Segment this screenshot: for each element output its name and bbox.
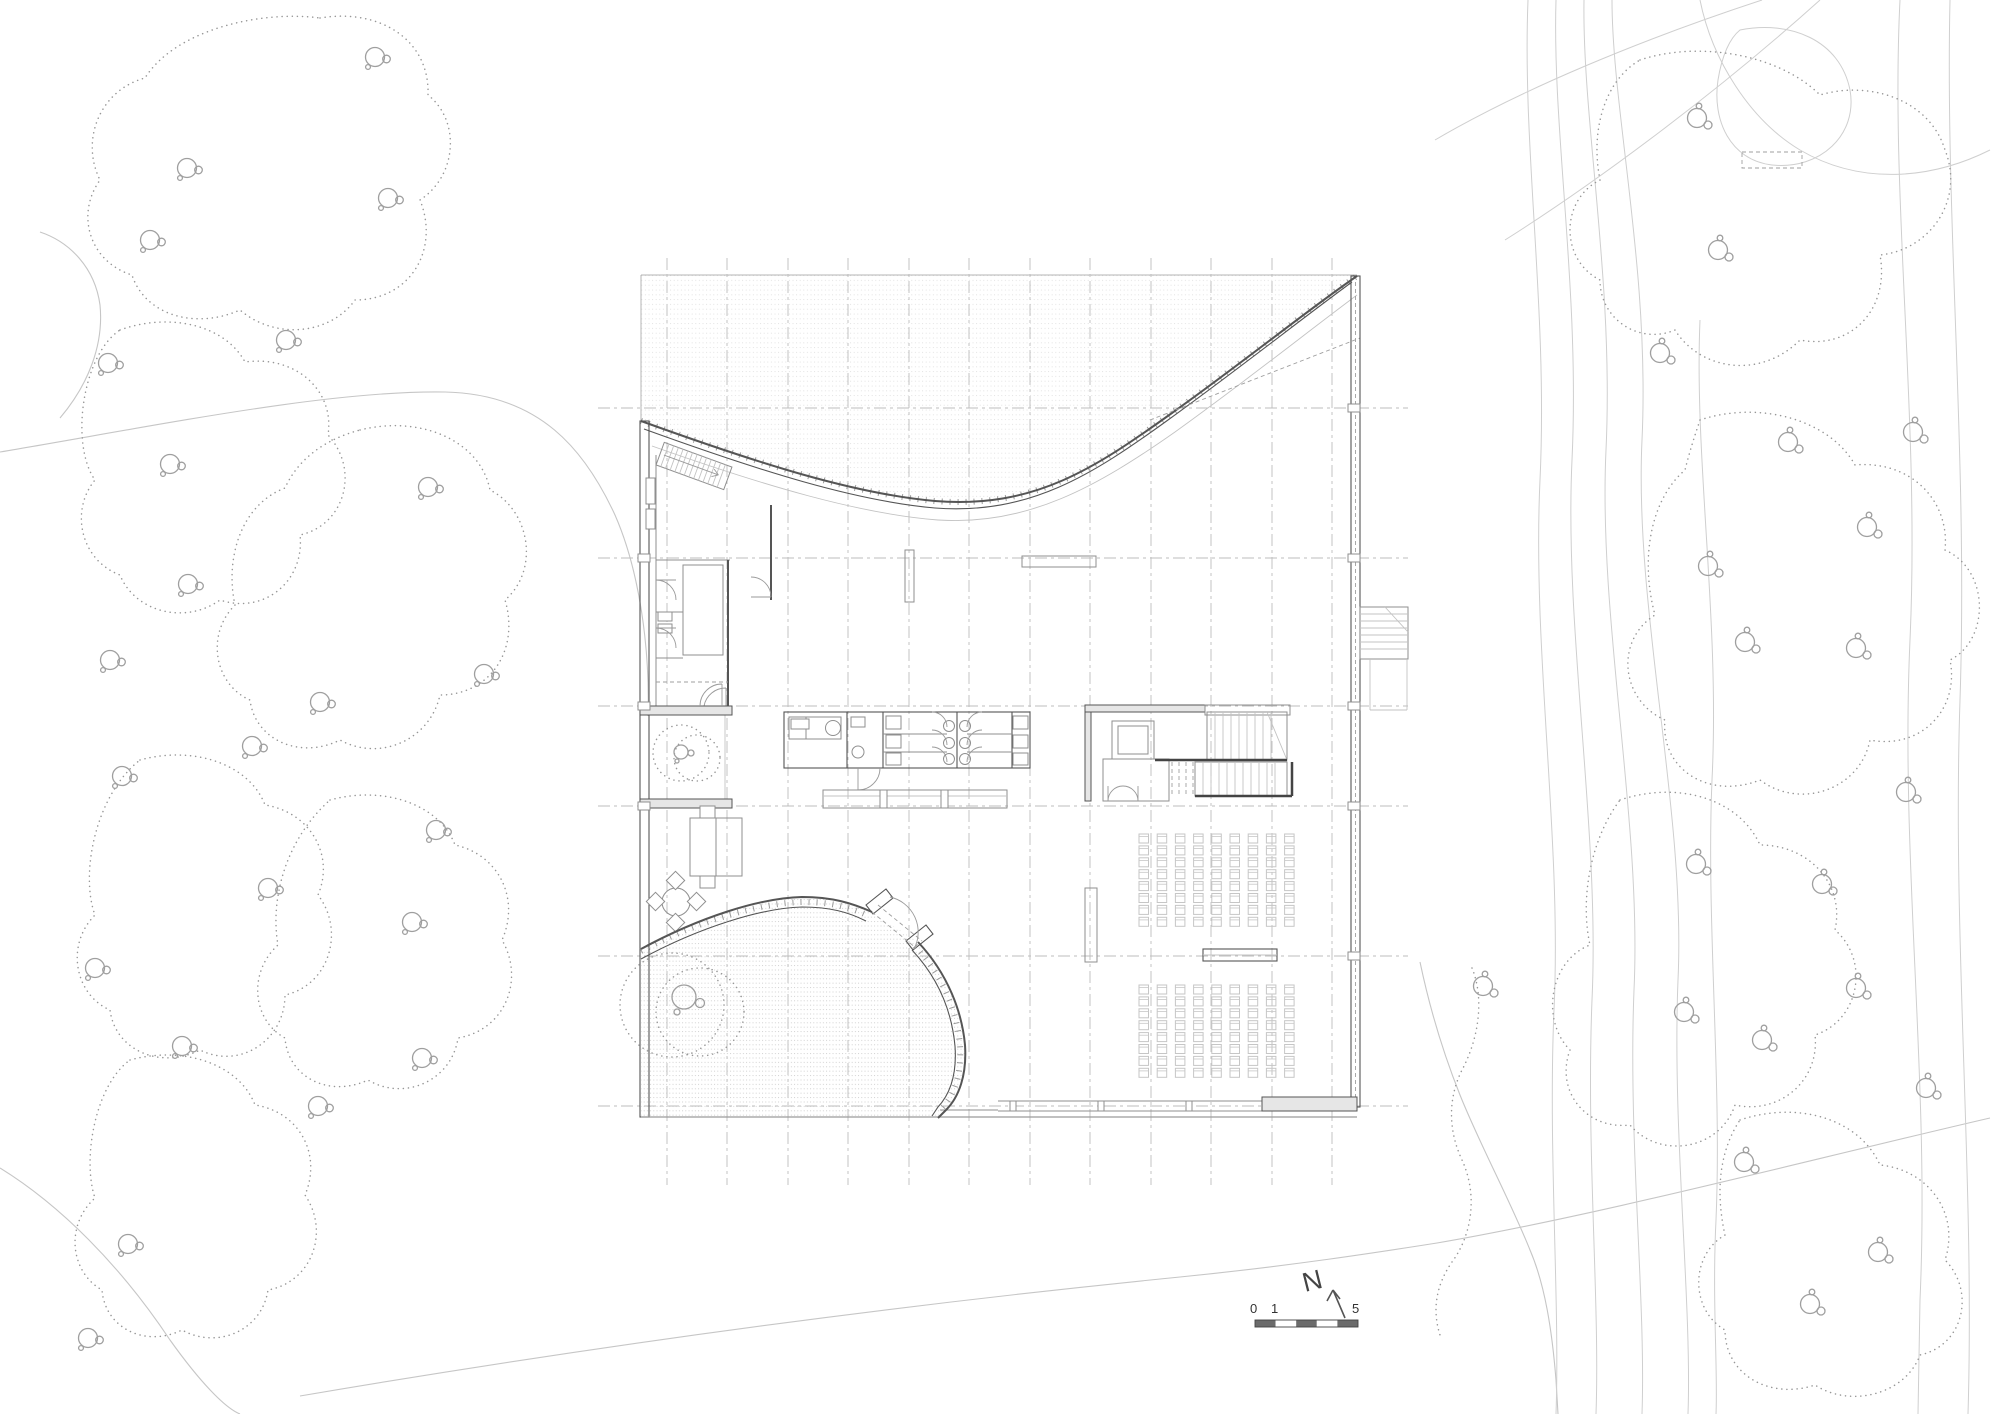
southeast-wall-band	[1262, 1097, 1357, 1111]
tree-trunk-tiny	[79, 1346, 84, 1351]
tree-trunk	[419, 478, 438, 497]
tree-icon	[86, 959, 111, 981]
chair-icon	[1194, 1056, 1204, 1065]
chair-icon	[1248, 905, 1258, 914]
tree-trunk-tiny	[277, 348, 282, 353]
tree-trunk-tiny	[1821, 869, 1827, 875]
tree-trunk-tiny	[243, 754, 248, 759]
chair-icon	[1157, 894, 1167, 903]
chair-icon	[1194, 834, 1204, 843]
chair-icon	[1230, 858, 1240, 867]
scale-bar-segment	[1337, 1320, 1358, 1327]
chair-icon	[1194, 882, 1204, 891]
chair-icon	[1139, 894, 1149, 903]
tree-icon	[475, 665, 500, 687]
tree-icon	[99, 354, 124, 376]
sink	[944, 721, 955, 732]
chair-icon	[1194, 1009, 1204, 1018]
tree-trunk	[427, 821, 446, 840]
chair-icon	[1248, 1045, 1258, 1054]
chair-icon	[1194, 1021, 1204, 1030]
tree-trunk-tiny	[1787, 427, 1793, 433]
tree-icon	[427, 821, 452, 843]
tree-trunk-small	[1863, 651, 1871, 659]
chair-icon	[1157, 1045, 1167, 1054]
chair-icon	[1139, 1009, 1149, 1018]
tree-trunk-tiny	[1482, 971, 1488, 977]
chair-icon	[1194, 997, 1204, 1006]
tree-icon	[419, 478, 444, 500]
chair-icon	[1139, 985, 1149, 994]
tree-trunk-tiny	[419, 495, 424, 500]
chair-icon	[1194, 1068, 1204, 1077]
tree-trunk-tiny	[141, 248, 146, 253]
chair-icon	[1139, 882, 1149, 891]
chair-icon	[1230, 997, 1240, 1006]
chair-icon	[1212, 917, 1222, 926]
chair-icon	[1212, 1033, 1222, 1042]
chair-icon	[1285, 985, 1295, 994]
sink	[944, 738, 955, 749]
wall-slat	[1085, 888, 1097, 962]
tree-trunk	[243, 737, 262, 756]
east-core	[1085, 705, 1292, 801]
tree-icon	[1688, 103, 1713, 129]
chair-icon	[1266, 894, 1276, 903]
tree-trunk-small	[1874, 530, 1882, 538]
chair-icon	[1175, 894, 1185, 903]
tree-trunk-small	[1885, 1255, 1893, 1263]
chair-icon	[1266, 1045, 1276, 1054]
tree-trunk-tiny	[178, 176, 183, 181]
chair-icon	[1285, 1021, 1295, 1030]
tree-icon	[178, 159, 203, 181]
chair-icon	[1157, 985, 1167, 994]
chair-icon	[1230, 905, 1240, 914]
chair-icon	[1212, 882, 1222, 891]
chair-icon	[1266, 1009, 1276, 1018]
chair-icon	[1285, 894, 1295, 903]
chair-icon	[1285, 997, 1295, 1006]
chair-icon	[1230, 985, 1240, 994]
tree-trunk-tiny	[179, 592, 184, 597]
chair-icon	[1248, 917, 1258, 926]
chair-icon	[1285, 1068, 1295, 1077]
tree-icon	[113, 767, 138, 789]
shower	[886, 716, 901, 729]
chair-icon	[1157, 905, 1167, 914]
chair-icon	[1230, 1068, 1240, 1077]
chair-icon	[1248, 997, 1258, 1006]
chair-icon	[1157, 1033, 1167, 1042]
tree-trunk	[277, 331, 296, 350]
chair-icon	[1230, 1021, 1240, 1030]
tree-icon	[1687, 849, 1712, 875]
door-swing	[751, 577, 771, 597]
chair-icon	[1285, 858, 1295, 867]
tree-trunk	[79, 1329, 98, 1348]
chair-icon	[1230, 846, 1240, 855]
tree-trunk-small	[1933, 1091, 1941, 1099]
tree-trunk-tiny	[1696, 103, 1702, 109]
chair-icon	[1248, 1009, 1258, 1018]
roof-surface	[641, 275, 1357, 502]
tree-trunk	[113, 767, 132, 786]
chair-icon	[1139, 917, 1149, 926]
window	[646, 509, 655, 529]
tree-trunk-tiny	[1695, 849, 1701, 855]
chair-icon	[1266, 846, 1276, 855]
chair-icon	[1139, 1021, 1149, 1030]
round-table	[662, 888, 690, 916]
chair-icon	[1212, 1068, 1222, 1077]
tree-trunk-small	[1703, 867, 1711, 875]
chair-icon	[1212, 846, 1222, 855]
tree-trunk-tiny	[101, 668, 106, 673]
chair-icon	[1266, 834, 1276, 843]
site-plan-page: N 0 1 5	[0, 0, 2000, 1414]
chair-icon	[1194, 1033, 1204, 1042]
chair-icon	[1248, 846, 1258, 855]
chair-icon	[1175, 997, 1185, 1006]
chair-icon	[1157, 834, 1167, 843]
chair-icon	[1175, 870, 1185, 879]
serving-counter	[823, 790, 1007, 808]
chair-icon	[1139, 846, 1149, 855]
chair-icon	[1212, 1009, 1222, 1018]
tree-trunk-small	[1490, 989, 1498, 997]
patio-tree	[653, 725, 720, 781]
patio-decking	[649, 715, 725, 799]
chair-icon	[1230, 834, 1240, 843]
chair-icon	[1266, 905, 1276, 914]
chair-icon	[1230, 1056, 1240, 1065]
chair	[700, 876, 715, 888]
trees-east	[1474, 103, 1942, 1315]
contour-fragment	[1742, 152, 1802, 168]
tree-trunk-tiny	[475, 682, 480, 687]
tree-icon	[79, 1329, 104, 1351]
shower	[886, 735, 901, 748]
tree-trunk-small	[1920, 435, 1928, 443]
tree-trunk-small	[1817, 1307, 1825, 1315]
storage-room	[683, 565, 723, 655]
chair-icon	[1175, 985, 1185, 994]
tree-icon	[1651, 338, 1676, 364]
tree-icon	[1869, 1237, 1894, 1263]
chair-icon	[1175, 1056, 1185, 1065]
chair-icon	[1230, 1009, 1240, 1018]
shower	[1013, 753, 1028, 765]
chair-icon	[1175, 1068, 1185, 1077]
tree-icon	[277, 331, 302, 353]
tree-trunk-tiny	[1809, 1289, 1815, 1295]
tree-trunk	[309, 1097, 328, 1116]
tree-trunk-tiny	[1744, 627, 1750, 633]
tree-trunk-small	[1863, 991, 1871, 999]
tree-icon	[1699, 551, 1724, 577]
chair-icon	[1194, 846, 1204, 855]
chair-icon	[1230, 894, 1240, 903]
tree-icon	[1904, 417, 1929, 443]
chair-icon	[1157, 1021, 1167, 1030]
chair-icon	[1266, 858, 1276, 867]
terrace-decking	[641, 715, 965, 1118]
tree-icon	[309, 1097, 334, 1119]
tree-icon	[1847, 973, 1872, 999]
tree-trunk	[311, 693, 330, 712]
chair-icon	[1230, 870, 1240, 879]
chair-icon	[1194, 917, 1204, 926]
chair-icon	[1157, 846, 1167, 855]
tree-trunk-small	[1795, 445, 1803, 453]
chair-icon	[1139, 997, 1149, 1006]
chair-icon	[1157, 1068, 1167, 1077]
tree-trunk	[173, 1037, 192, 1056]
wc-fixture	[658, 612, 672, 621]
chair-icon	[1285, 917, 1295, 926]
chair-icon	[1230, 1033, 1240, 1042]
west-wing-rooms	[646, 455, 771, 706]
chair-icon	[1157, 870, 1167, 879]
chair-icon	[1285, 1045, 1295, 1054]
tree-trunk	[366, 48, 385, 67]
chair-icon	[1212, 834, 1222, 843]
chair-icon	[1212, 985, 1222, 994]
chair-icon	[1230, 882, 1240, 891]
tree-trunk-tiny	[119, 1252, 124, 1257]
chair-icon	[1285, 870, 1295, 879]
chair-icon	[1175, 882, 1185, 891]
tree-icon	[1801, 1289, 1826, 1315]
scale-bar-segment	[1317, 1320, 1338, 1327]
tree-trunk-tiny	[161, 472, 166, 477]
tree-trunk-small	[1667, 356, 1675, 364]
tree-icon	[1735, 1147, 1760, 1173]
tree-trunk-tiny	[1683, 997, 1689, 1003]
tree-icon	[366, 48, 391, 70]
chair-icon	[1212, 858, 1222, 867]
chair-icon	[1285, 1033, 1295, 1042]
chair-icon	[1194, 858, 1204, 867]
tree-icon	[403, 913, 428, 935]
chair-icon	[1139, 870, 1149, 879]
tree-icon	[1779, 427, 1804, 453]
chair-icon	[1194, 894, 1204, 903]
tree-trunk-tiny	[259, 896, 264, 901]
scale-bar-segment	[1255, 1320, 1276, 1327]
tree-icon	[1813, 869, 1838, 895]
tree-icon	[243, 737, 268, 759]
tree-icon	[179, 575, 204, 597]
chair-icon	[1212, 997, 1222, 1006]
chair-icon	[1248, 985, 1258, 994]
tree-trunk-tiny	[1866, 512, 1872, 518]
tree-trunk-tiny	[366, 65, 371, 70]
chair-icon	[1285, 846, 1295, 855]
chair-icon	[1248, 1033, 1258, 1042]
tree-trunk	[119, 1235, 138, 1254]
chair-icon	[1175, 1021, 1185, 1030]
tree-icon	[161, 455, 186, 477]
chair-icon	[1175, 858, 1185, 867]
chair	[700, 806, 715, 818]
door-swing	[704, 688, 726, 706]
chair-icon	[1194, 870, 1204, 879]
south-low-wall	[940, 1097, 1357, 1111]
tree-trunk-tiny	[1761, 1025, 1767, 1031]
door-swing	[656, 580, 676, 600]
chair-icon	[1175, 1033, 1185, 1042]
tree-icon	[119, 1235, 144, 1257]
chair-icon	[1285, 905, 1295, 914]
north-arrow-line	[1327, 1290, 1345, 1318]
chair-icon	[1285, 882, 1295, 891]
chair-icon	[1285, 1009, 1295, 1018]
chair-icon	[1266, 1056, 1276, 1065]
patio-wall-south	[640, 799, 732, 808]
tree-trunk-tiny	[113, 784, 118, 789]
tree-trunk	[101, 651, 120, 670]
tree-icon	[311, 693, 336, 715]
wc	[852, 746, 864, 758]
sink	[826, 721, 841, 736]
tree-trunk-tiny	[99, 371, 104, 376]
chair-icon	[1175, 1045, 1185, 1054]
tree-trunk-tiny	[427, 838, 432, 843]
chair-icon	[1212, 1045, 1222, 1054]
chair-icon	[1212, 870, 1222, 879]
chair-icon	[1139, 905, 1149, 914]
chair-icon	[1285, 1056, 1295, 1065]
tree-trunk	[379, 189, 398, 208]
door-swing	[858, 768, 880, 790]
tree-trunk-small	[1691, 1015, 1699, 1023]
chair-icon	[1139, 858, 1149, 867]
scale-bar-graphic	[1255, 1320, 1358, 1327]
tree-trunk	[403, 913, 422, 932]
north-label: N	[1299, 1264, 1325, 1298]
tree-trunk-tiny	[413, 1066, 418, 1071]
sanitary-block	[784, 712, 1030, 790]
tree-icon	[1474, 971, 1499, 997]
tree-trunk	[178, 159, 197, 178]
shower	[886, 753, 901, 765]
tree-trunk-tiny	[309, 1114, 314, 1119]
chair-icon	[1194, 985, 1204, 994]
tree-trunk-tiny	[1912, 417, 1918, 423]
corridor-door-swing	[700, 684, 722, 706]
chair-icon	[1266, 882, 1276, 891]
tree-trunk	[161, 455, 180, 474]
chair-icon	[1248, 1068, 1258, 1077]
chair-icon	[1248, 1021, 1258, 1030]
sink	[944, 754, 955, 765]
chair-icon	[1248, 894, 1258, 903]
chair-icon	[1248, 882, 1258, 891]
chair-icon	[1175, 846, 1185, 855]
tree-trunk-tiny	[1925, 1073, 1931, 1079]
chair-icon	[1212, 905, 1222, 914]
tree-icon	[1858, 512, 1883, 538]
tree-trunk-tiny	[1743, 1147, 1749, 1153]
scale-bar-segment	[1276, 1320, 1297, 1327]
tree-trunk-tiny	[1717, 235, 1723, 241]
tree-trunk-tiny	[379, 206, 384, 211]
site-east	[1420, 0, 1990, 1414]
floor-plan-drawing: N 0 1 5	[0, 0, 2000, 1414]
chair-icon	[1157, 1056, 1167, 1065]
exterior-stair	[1360, 607, 1408, 710]
north-arrow: N	[1299, 1264, 1345, 1318]
chair-icon	[1175, 905, 1185, 914]
shower	[1013, 735, 1028, 748]
tree-trunk-small	[1751, 1165, 1759, 1173]
tree-icon	[1736, 627, 1761, 653]
chair-icon	[1248, 1056, 1258, 1065]
chair-icon	[1139, 1033, 1149, 1042]
tree-icon	[413, 1049, 438, 1071]
trees-west	[79, 48, 500, 1351]
chair-icon	[1139, 1068, 1149, 1077]
chair-icon	[1175, 834, 1185, 843]
tree-trunk	[259, 879, 278, 898]
scale-label-1: 1	[1271, 1301, 1278, 1316]
chair-icon	[1266, 1021, 1276, 1030]
chair-icon	[1285, 834, 1295, 843]
tree-trunk	[141, 231, 160, 250]
tree-trunk-tiny	[1877, 1237, 1883, 1243]
window	[646, 478, 655, 504]
scale-label-0: 0	[1250, 1301, 1257, 1316]
tree-trunk-tiny	[173, 1054, 178, 1059]
seating-partition	[1203, 949, 1277, 961]
chair-icon	[1175, 1009, 1185, 1018]
chair-icon	[1139, 1056, 1149, 1065]
chair-icon	[1266, 1068, 1276, 1077]
chair-icon	[1139, 834, 1149, 843]
tree-canopy-outlines-east	[1436, 51, 1979, 1396]
tree-trunk	[99, 354, 118, 373]
chair-icon	[1266, 1033, 1276, 1042]
chair-icon	[1194, 1045, 1204, 1054]
chair-icon	[1230, 1045, 1240, 1054]
tree-icon	[1675, 997, 1700, 1023]
chair-icon	[1157, 1009, 1167, 1018]
chair-icon	[1266, 985, 1276, 994]
tree-trunk-tiny	[1659, 338, 1665, 344]
tree-icon	[1753, 1025, 1778, 1051]
chair-icon	[1212, 894, 1222, 903]
scale-bar-segment	[1296, 1320, 1317, 1327]
chair-icon	[1175, 917, 1185, 926]
tree-trunk	[179, 575, 198, 594]
tree-trunk-tiny	[1855, 973, 1861, 979]
double-door	[1108, 786, 1138, 801]
tree-trunk-small	[1913, 795, 1921, 803]
tree-trunk-small	[1725, 253, 1733, 261]
contour-lines	[1435, 0, 1990, 1414]
tree-trunk-tiny	[403, 930, 408, 935]
shower	[1013, 716, 1028, 729]
tree-trunk-tiny	[1855, 633, 1861, 639]
core-room	[1103, 759, 1169, 801]
tree-trunk-small	[1769, 1043, 1777, 1051]
chair-icon	[1139, 1045, 1149, 1054]
chair-icon	[1248, 858, 1258, 867]
chair-icon	[1230, 917, 1240, 926]
tree-icon	[101, 651, 126, 673]
